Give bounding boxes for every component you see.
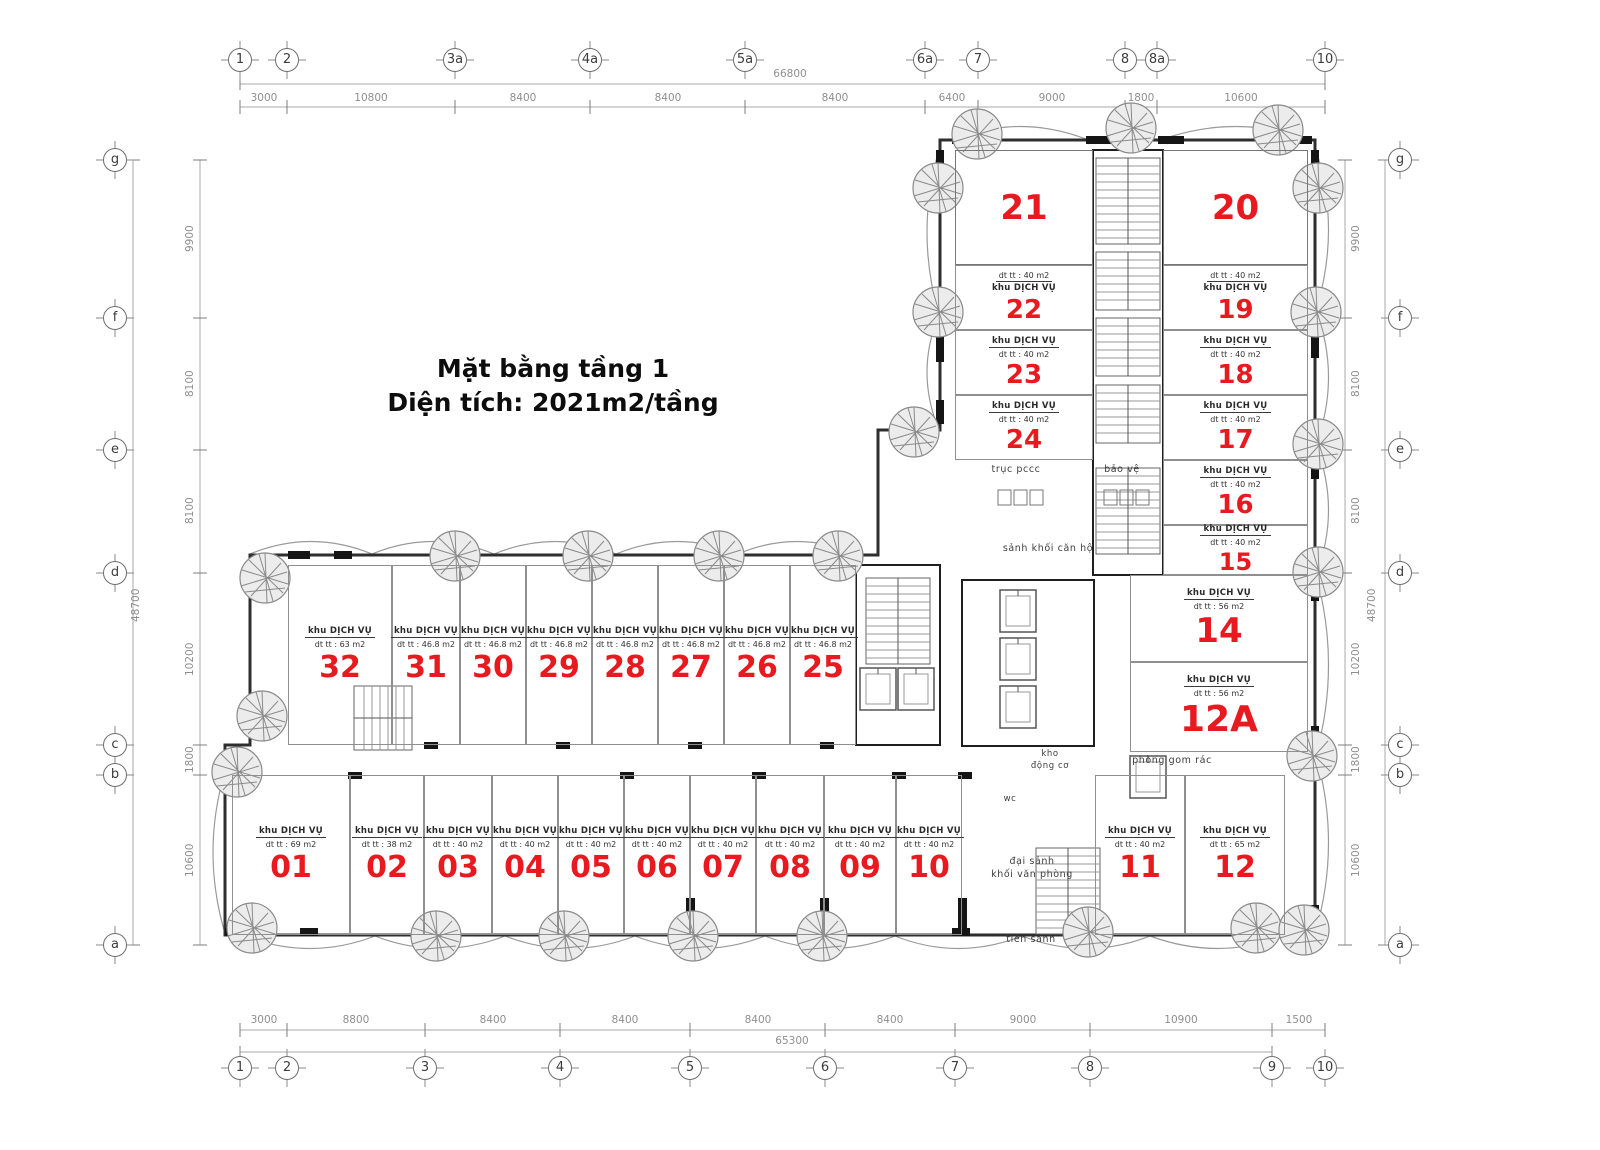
title-line-1: Mặt bằng tầng 1 bbox=[348, 352, 758, 386]
unit-type-label: khu DỊCH VỤ bbox=[1200, 336, 1270, 348]
unit-area-label: dt tt : 38 m2 bbox=[362, 840, 412, 849]
unit-area-label: dt tt : 40 m2 bbox=[500, 840, 550, 849]
unit-area-label: dt tt : 40 m2 bbox=[996, 271, 1052, 282]
unit-type-label: khu DỊCH VỤ bbox=[490, 826, 560, 838]
unit-number: 12 bbox=[1214, 852, 1256, 884]
grid-bubble-right-e: e bbox=[1388, 438, 1412, 462]
grid-bubble-left-e: e bbox=[103, 438, 127, 462]
dim-label: 10200 bbox=[184, 619, 197, 699]
unit-number: 03 bbox=[437, 852, 479, 884]
dim-total-left: 48700 bbox=[130, 560, 143, 650]
grid-bubble-bottom-10: 10 bbox=[1313, 1056, 1337, 1080]
grid-bubble-top-1: 1 bbox=[228, 48, 252, 72]
unit-number: 22 bbox=[1006, 297, 1042, 324]
unit-number: 30 bbox=[472, 652, 514, 684]
unit-area-label: dt tt : 46.8 m2 bbox=[794, 640, 852, 649]
unit-number: 31 bbox=[405, 652, 447, 684]
unit-area-label: dt tt : 46.8 m2 bbox=[530, 640, 588, 649]
unit-number: 24 bbox=[1006, 427, 1042, 454]
unit-25: khu DỊCH VỤ dt tt : 46.8 m2 25 bbox=[790, 565, 856, 745]
dim-label: 8400 bbox=[628, 92, 708, 104]
unit-number: 21 bbox=[1000, 191, 1047, 227]
unit-type-label: khu DỊCH VỤ bbox=[989, 401, 1059, 413]
grid-bubble-bottom-1: 1 bbox=[228, 1056, 252, 1080]
unit-type-label: khu DỊCH VỤ bbox=[305, 626, 375, 638]
grid-bubble-bottom-4: 4 bbox=[548, 1056, 572, 1080]
grid-bubble-right-d: d bbox=[1388, 561, 1412, 585]
unit-type-label: khu DỊCH VỤ bbox=[1200, 826, 1270, 838]
grid-bubble-top-2: 2 bbox=[275, 48, 299, 72]
unit-area-label: dt tt : 40 m2 bbox=[765, 840, 815, 849]
dim-label: 9000 bbox=[1012, 92, 1092, 104]
unit-number: 10 bbox=[908, 852, 950, 884]
unit-number: 20 bbox=[1212, 191, 1259, 227]
unit-number: 02 bbox=[366, 852, 408, 884]
room-label-kho: kho bbox=[1041, 748, 1058, 760]
unit-number: 25 bbox=[802, 652, 844, 684]
unit-number: 15 bbox=[1219, 550, 1252, 575]
unit-number: 07 bbox=[702, 852, 744, 884]
unit-03: khu DỊCH VỤ dt tt : 40 m2 03 bbox=[424, 775, 492, 935]
unit-10: khu DỊCH VỤ dt tt : 40 m2 10 bbox=[896, 775, 962, 935]
dim-label: 1500 bbox=[1259, 1014, 1339, 1026]
dim-label: 1800 bbox=[1350, 720, 1363, 800]
unit-number: 09 bbox=[839, 852, 881, 884]
grid-bubble-left-f: f bbox=[103, 306, 127, 330]
unit-number: 27 bbox=[670, 652, 712, 684]
unit-19: dt tt : 40 m2 khu DỊCH VỤ 19 bbox=[1163, 265, 1308, 330]
grid-bubble-right-c: c bbox=[1388, 733, 1412, 757]
dim-label: 9900 bbox=[184, 199, 197, 279]
grid-bubble-left-b: b bbox=[103, 763, 127, 787]
unit-number: 08 bbox=[769, 852, 811, 884]
dim-label: 3000 bbox=[224, 1014, 304, 1026]
unit-number: 26 bbox=[736, 652, 778, 684]
dim-label: 8400 bbox=[850, 1014, 930, 1026]
unit-type-label: khu DỊCH VỤ bbox=[1200, 524, 1270, 536]
unit-21: 21 bbox=[955, 150, 1093, 265]
dim-label: 1800 bbox=[184, 720, 197, 800]
unit-number: 05 bbox=[570, 852, 612, 884]
unit-07: khu DỊCH VỤ dt tt : 40 m2 07 bbox=[690, 775, 756, 935]
dim-label: 10900 bbox=[1141, 1014, 1221, 1026]
unit-number: 12A bbox=[1180, 701, 1258, 739]
room-label-dong-co: động cơ bbox=[1031, 760, 1069, 772]
dim-label: 8100 bbox=[1350, 471, 1363, 551]
dim-label: 9000 bbox=[983, 1014, 1063, 1026]
grid-bubble-top-8: 8 bbox=[1113, 48, 1137, 72]
dim-label: 8400 bbox=[795, 92, 875, 104]
grid-bubble-top-8a: 8a bbox=[1145, 48, 1169, 72]
unit-area-label: dt tt : 40 m2 bbox=[904, 840, 954, 849]
unit-type-label: khu DỊCH VỤ bbox=[989, 336, 1059, 348]
grid-bubble-top-3a: 3a bbox=[443, 48, 467, 72]
dim-label: 10600 bbox=[1201, 92, 1281, 104]
unit-number: 16 bbox=[1217, 492, 1253, 519]
grid-bubble-top-7: 7 bbox=[966, 48, 990, 72]
unit-24: khu DỊCH VỤ dt tt : 40 m2 24 bbox=[955, 395, 1093, 460]
unit-17: khu DỊCH VỤ dt tt : 40 m2 17 bbox=[1163, 395, 1308, 460]
room-label-tien-sanh: tiền sảnh bbox=[1006, 934, 1055, 946]
unit-04: khu DỊCH VỤ dt tt : 40 m2 04 bbox=[492, 775, 558, 935]
dim-total-top: 66800 bbox=[740, 68, 840, 80]
unit-area-label: dt tt : 40 m2 bbox=[566, 840, 616, 849]
dim-total-right: 48700 bbox=[1366, 560, 1379, 650]
unit-number: 18 bbox=[1217, 362, 1253, 389]
unit-area-label: dt tt : 46.8 m2 bbox=[397, 640, 455, 649]
dim-total-bottom: 65300 bbox=[742, 1035, 842, 1047]
dim-label: 8400 bbox=[585, 1014, 665, 1026]
unit-area-label: dt tt : 40 m2 bbox=[1210, 415, 1260, 424]
unit-type-label: khu DỊCH VỤ bbox=[256, 826, 326, 838]
unit-area-label: dt tt : 46.8 m2 bbox=[464, 640, 522, 649]
unit-12A: khu DỊCH VỤ dt tt : 56 m2 12A bbox=[1130, 662, 1308, 752]
unit-type-label: khu DỊCH VỤ bbox=[590, 626, 660, 638]
unit-29: khu DỊCH VỤ dt tt : 46.8 m2 29 bbox=[526, 565, 592, 745]
unit-09: khu DỊCH VỤ dt tt : 40 m2 09 bbox=[824, 775, 896, 935]
unit-number: 11 bbox=[1119, 852, 1161, 884]
room-label-phong-gom-rac: phòng gom rác bbox=[1132, 755, 1212, 767]
unit-number: 01 bbox=[270, 852, 312, 884]
dim-label: 8400 bbox=[483, 92, 563, 104]
dim-label: 10600 bbox=[1350, 820, 1363, 900]
unit-number: 17 bbox=[1217, 427, 1253, 454]
unit-type-label: khu DỊCH VỤ bbox=[1200, 282, 1270, 294]
unit-type-label: khu DỊCH VỤ bbox=[1184, 675, 1254, 687]
unit-area-label: dt tt : 46.8 m2 bbox=[596, 640, 654, 649]
grid-bubble-bottom-7: 7 bbox=[943, 1056, 967, 1080]
floor-plan-page: Mặt bằng tầng 1 Diện tích: 2021m2/tầng 1… bbox=[0, 0, 1600, 1150]
unit-23: khu DỊCH VỤ dt tt : 40 m2 23 bbox=[955, 330, 1093, 395]
unit-number: 19 bbox=[1217, 297, 1253, 324]
title-line-2: Diện tích: 2021m2/tầng bbox=[348, 386, 758, 420]
unit-type-label: khu DỊCH VỤ bbox=[1184, 588, 1254, 600]
unit-28: khu DỊCH VỤ dt tt : 46.8 m2 28 bbox=[592, 565, 658, 745]
unit-number: 14 bbox=[1195, 614, 1242, 650]
dim-label: 10800 bbox=[331, 92, 411, 104]
unit-area-label: dt tt : 40 m2 bbox=[433, 840, 483, 849]
unit-area-label: dt tt : 40 m2 bbox=[1207, 271, 1263, 282]
unit-type-label: khu DỊCH VỤ bbox=[825, 826, 895, 838]
grid-bubble-top-5a: 5a bbox=[733, 48, 757, 72]
unit-area-label: dt tt : 56 m2 bbox=[1194, 602, 1244, 611]
unit-number: 04 bbox=[504, 852, 546, 884]
unit-type-label: khu DỊCH VỤ bbox=[688, 826, 758, 838]
room-label-wc: wc bbox=[1004, 793, 1017, 805]
grid-bubble-left-d: d bbox=[103, 561, 127, 585]
unit-area-label: dt tt : 46.8 m2 bbox=[662, 640, 720, 649]
page-title: Mặt bằng tầng 1 Diện tích: 2021m2/tầng bbox=[348, 352, 758, 420]
unit-number: 06 bbox=[636, 852, 678, 884]
grid-bubble-bottom-9: 9 bbox=[1260, 1056, 1284, 1080]
unit-area-label: dt tt : 40 m2 bbox=[999, 415, 1049, 424]
grid-bubble-bottom-6: 6 bbox=[813, 1056, 837, 1080]
unit-number: 23 bbox=[1006, 362, 1042, 389]
grid-bubble-right-b: b bbox=[1388, 763, 1412, 787]
unit-16: khu DỊCH VỤ dt tt : 40 m2 16 bbox=[1163, 460, 1308, 525]
dim-label: 8400 bbox=[453, 1014, 533, 1026]
unit-type-label: khu DỊCH VỤ bbox=[1200, 466, 1270, 478]
unit-type-label: khu DỊCH VỤ bbox=[755, 826, 825, 838]
dim-label: 10200 bbox=[1350, 619, 1363, 699]
grid-bubble-bottom-2: 2 bbox=[275, 1056, 299, 1080]
unit-area-label: dt tt : 40 m2 bbox=[835, 840, 885, 849]
unit-type-label: khu DỊCH VỤ bbox=[656, 626, 726, 638]
unit-05: khu DỊCH VỤ dt tt : 40 m2 05 bbox=[558, 775, 624, 935]
unit-area-label: dt tt : 63 m2 bbox=[315, 640, 365, 649]
unit-type-label: khu DỊCH VỤ bbox=[352, 826, 422, 838]
unit-08: khu DỊCH VỤ dt tt : 40 m2 08 bbox=[756, 775, 824, 935]
dim-label: 3000 bbox=[224, 92, 304, 104]
unit-type-label: khu DỊCH VỤ bbox=[989, 282, 1059, 294]
unit-area-label: dt tt : 40 m2 bbox=[1210, 538, 1260, 547]
dim-label: 1800 bbox=[1101, 92, 1181, 104]
grid-bubble-right-g: g bbox=[1388, 148, 1412, 172]
unit-30: khu DỊCH VỤ dt tt : 46.8 m2 30 bbox=[460, 565, 526, 745]
unit-18: khu DỊCH VỤ dt tt : 40 m2 18 bbox=[1163, 330, 1308, 395]
unit-type-label: khu DỊCH VỤ bbox=[556, 826, 626, 838]
unit-area-label: dt tt : 46.8 m2 bbox=[728, 640, 786, 649]
unit-type-label: khu DỊCH VỤ bbox=[1105, 826, 1175, 838]
unit-area-label: dt tt : 69 m2 bbox=[266, 840, 316, 849]
unit-area-label: dt tt : 40 m2 bbox=[1210, 480, 1260, 489]
room-label-truc-pccc: trục pccc bbox=[992, 464, 1041, 476]
dim-label: 8100 bbox=[1350, 344, 1363, 424]
unit-type-label: khu DỊCH VỤ bbox=[458, 626, 528, 638]
dim-label: 8100 bbox=[184, 344, 197, 424]
unit-15: khu DỊCH VỤ dt tt : 40 m2 15 bbox=[1163, 525, 1308, 575]
grid-bubble-bottom-8: 8 bbox=[1078, 1056, 1102, 1080]
unit-26: khu DỊCH VỤ dt tt : 46.8 m2 26 bbox=[724, 565, 790, 745]
unit-area-label: dt tt : 56 m2 bbox=[1194, 689, 1244, 698]
unit-area-label: dt tt : 40 m2 bbox=[999, 350, 1049, 359]
unit-area-label: dt tt : 40 m2 bbox=[632, 840, 682, 849]
grid-bubble-left-a: a bbox=[103, 933, 127, 957]
grid-bubble-left-g: g bbox=[103, 148, 127, 172]
unit-type-label: khu DỊCH VỤ bbox=[524, 626, 594, 638]
unit-11: khu DỊCH VỤ dt tt : 40 m2 11 bbox=[1095, 775, 1185, 935]
dim-label: 6400 bbox=[912, 92, 992, 104]
unit-area-label: dt tt : 40 m2 bbox=[698, 840, 748, 849]
grid-bubble-top-4a: 4a bbox=[578, 48, 602, 72]
unit-31: khu DỊCH VỤ dt tt : 46.8 m2 31 bbox=[392, 565, 460, 745]
unit-14: khu DỊCH VỤ dt tt : 56 m2 14 bbox=[1130, 575, 1308, 662]
unit-06: khu DỊCH VỤ dt tt : 40 m2 06 bbox=[624, 775, 690, 935]
grid-bubble-bottom-5: 5 bbox=[678, 1056, 702, 1080]
grid-bubble-bottom-3: 3 bbox=[413, 1056, 437, 1080]
unit-01: khu DỊCH VỤ dt tt : 69 m2 01 bbox=[232, 775, 350, 935]
unit-02: khu DỊCH VỤ dt tt : 38 m2 02 bbox=[350, 775, 424, 935]
unit-22: dt tt : 40 m2 khu DỊCH VỤ 22 bbox=[955, 265, 1093, 330]
unit-area-label: dt tt : 40 m2 bbox=[1210, 350, 1260, 359]
unit-type-label: khu DỊCH VỤ bbox=[423, 826, 493, 838]
grid-bubble-right-a: a bbox=[1388, 933, 1412, 957]
dim-label: 9900 bbox=[1350, 199, 1363, 279]
unit-type-label: khu DỊCH VỤ bbox=[894, 826, 964, 838]
unit-area-label: dt tt : 40 m2 bbox=[1115, 840, 1165, 849]
unit-number: 32 bbox=[319, 652, 361, 684]
unit-type-label: khu DỊCH VỤ bbox=[1200, 401, 1270, 413]
room-label-dai-sanh: đại sảnh bbox=[1009, 856, 1054, 868]
unit-number: 28 bbox=[604, 652, 646, 684]
unit-type-label: khu DỊCH VỤ bbox=[391, 626, 461, 638]
unit-type-label: khu DỊCH VỤ bbox=[722, 626, 792, 638]
unit-12: khu DỊCH VỤ dt tt : 65 m2 12 bbox=[1185, 775, 1285, 935]
dim-label: 8400 bbox=[718, 1014, 798, 1026]
room-label-bao-ve: bảo vệ bbox=[1104, 464, 1140, 476]
unit-number: 29 bbox=[538, 652, 580, 684]
unit-20: 20 bbox=[1163, 150, 1308, 265]
grid-bubble-right-f: f bbox=[1388, 306, 1412, 330]
grid-bubble-top-10: 10 bbox=[1313, 48, 1337, 72]
dim-label: 10600 bbox=[184, 820, 197, 900]
dim-label: 8100 bbox=[184, 471, 197, 551]
unit-27: khu DỊCH VỤ dt tt : 46.8 m2 27 bbox=[658, 565, 724, 745]
room-label-khoi-van-phong: khối văn phòng bbox=[991, 869, 1073, 881]
room-label-sanh-khoi-can-ho: sảnh khối căn hộ bbox=[1003, 543, 1093, 555]
unit-area-label: dt tt : 65 m2 bbox=[1210, 840, 1260, 849]
unit-type-label: khu DỊCH VỤ bbox=[622, 826, 692, 838]
grid-bubble-left-c: c bbox=[103, 733, 127, 757]
unit-32: khu DỊCH VỤ dt tt : 63 m2 32 bbox=[288, 565, 392, 745]
unit-type-label: khu DỊCH VỤ bbox=[788, 626, 858, 638]
grid-bubble-top-6a: 6a bbox=[913, 48, 937, 72]
dim-label: 8800 bbox=[316, 1014, 396, 1026]
